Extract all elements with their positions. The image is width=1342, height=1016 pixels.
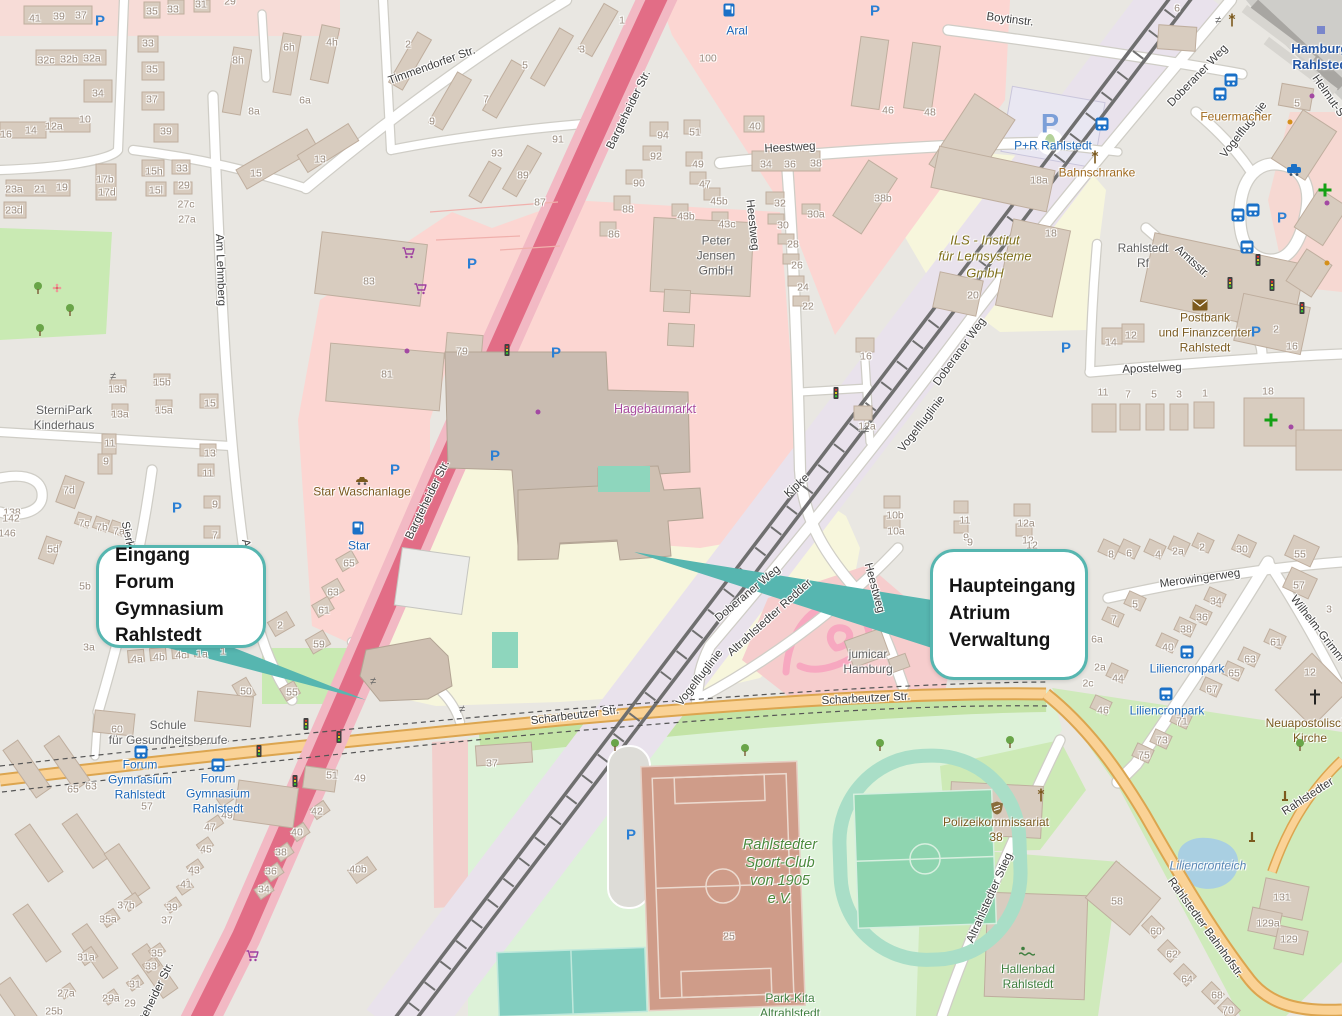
street (800, 388, 868, 392)
building (24, 6, 92, 24)
building (144, 2, 160, 18)
building (856, 338, 874, 352)
building (704, 188, 720, 200)
building (200, 444, 216, 456)
building (98, 454, 112, 474)
building (142, 160, 164, 176)
building (36, 50, 106, 65)
building (1092, 404, 1116, 432)
building (154, 374, 170, 386)
building (1157, 25, 1197, 52)
building (84, 80, 112, 102)
building (752, 151, 820, 171)
building (475, 742, 532, 766)
building (142, 92, 164, 110)
building (6, 180, 70, 196)
building (1014, 504, 1030, 516)
building (303, 766, 338, 792)
building (154, 124, 178, 142)
building (766, 192, 784, 204)
building (614, 196, 630, 210)
building (884, 496, 900, 508)
callout-eingang: Eingang Forum Gymnasium Rahlstedt (96, 545, 266, 648)
building (600, 222, 616, 236)
building (783, 254, 799, 264)
football-pitch-red (641, 761, 805, 1010)
building (96, 164, 116, 200)
building (650, 217, 754, 296)
building (954, 521, 968, 533)
building (168, 0, 184, 14)
football-pitch-teal (497, 947, 647, 1016)
building (1146, 404, 1164, 430)
building (1016, 524, 1032, 536)
building (195, 691, 254, 727)
building (793, 296, 809, 306)
building (1194, 402, 1214, 428)
callout-text: Haupteingang Atrium Verwaltung (949, 574, 1076, 655)
building (50, 118, 90, 132)
building (802, 204, 820, 214)
building (112, 404, 128, 416)
building (234, 780, 299, 828)
building (1122, 324, 1144, 342)
building (1102, 328, 1122, 344)
building (4, 202, 26, 218)
building (684, 120, 700, 134)
building (198, 464, 214, 476)
street (262, 14, 266, 78)
building (643, 146, 661, 160)
map-canvas[interactable]: Timmendorfer Str.Bargteheider Str.Bargte… (0, 0, 1342, 1016)
building (626, 170, 642, 184)
building (204, 496, 220, 508)
callout-haupteingang: Haupteingang Atrium Verwaltung (930, 549, 1088, 680)
building (672, 204, 688, 216)
building (172, 160, 190, 174)
building (174, 182, 192, 194)
building (667, 323, 694, 346)
map-base-layer (0, 0, 1342, 1016)
building (156, 400, 172, 412)
building (984, 892, 1088, 999)
building (884, 516, 900, 528)
building (93, 710, 135, 736)
building (768, 214, 784, 224)
building (650, 122, 668, 136)
callout-text: Eingang Forum Gymnasium Rahlstedt (115, 543, 247, 651)
building (128, 649, 145, 662)
building (204, 526, 220, 538)
building (110, 380, 126, 392)
building (0, 122, 46, 138)
building (146, 182, 166, 196)
building (1120, 404, 1140, 430)
building (142, 62, 164, 80)
building (663, 289, 690, 312)
building (1170, 404, 1188, 430)
building (686, 152, 702, 166)
building (788, 276, 804, 286)
building (315, 232, 428, 306)
building (954, 501, 968, 513)
building (200, 394, 218, 408)
building (690, 172, 706, 184)
building (194, 0, 210, 12)
building (102, 434, 116, 454)
building (1244, 398, 1304, 446)
building (778, 234, 794, 244)
park-area (0, 228, 112, 340)
building (854, 406, 872, 420)
building (744, 116, 764, 132)
building (1296, 430, 1342, 470)
building (326, 343, 445, 411)
building (138, 36, 158, 52)
